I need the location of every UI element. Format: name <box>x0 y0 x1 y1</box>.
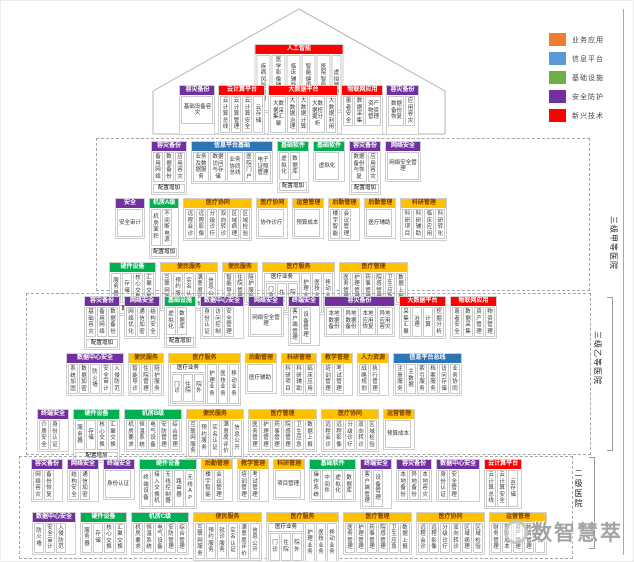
item-cell: 虚拟化 <box>279 152 289 180</box>
box-header: 医疗管理 <box>249 410 316 419</box>
item-cell: 恒温系统 <box>144 523 154 553</box>
box-header: 硬件设备 <box>81 513 126 522</box>
item-cell: 备份恢复 <box>44 470 54 500</box>
tier-row: 容灾备份备用网络数据备份应用容灾配置增加信息平台基础业务及数据服务数据访问与存储… <box>99 141 587 195</box>
item-cell: 备用网络 <box>97 307 107 337</box>
item-cell: 云计算总线 <box>220 96 230 133</box>
item-cell: 数据备份与恢复 <box>351 152 367 182</box>
item-cell: 异地备份 <box>409 470 419 500</box>
item-cell: 安防管理 <box>166 523 176 553</box>
box-header: 网络安全 <box>125 297 159 306</box>
box-body: 患者安全数据采集资产管理物资管理 <box>451 306 496 338</box>
box-header: 人力资源 <box>358 354 388 363</box>
item-cell: 院感管理 <box>283 420 293 450</box>
item-cell: 执行管理 <box>370 364 380 394</box>
item-cell: 院感管理 <box>378 523 388 553</box>
item-cell: 医技业务 <box>218 364 228 404</box>
item-cell: 预算成本 <box>385 420 411 448</box>
box-body: 楼宇智能会议管理 <box>329 208 359 240</box>
tier2-side-label: 三级乙等医院 <box>592 331 603 385</box>
item-cell: 远程影像 <box>334 420 344 450</box>
box-header: 医疗协同 <box>322 410 378 419</box>
item-cell: 卫生应急 <box>294 420 304 450</box>
item-cell: 院外 <box>194 374 204 402</box>
box-header: 便民服务 <box>161 263 217 272</box>
box-body: 医疗业务门诊住院院外护理业务医技业务移动业务 <box>169 363 240 405</box>
item-cell: 虚拟化 <box>333 470 343 500</box>
legend-swatch-infra <box>549 71 566 84</box>
box-header: 后勤管理 <box>202 460 232 469</box>
item-cell: 设备管理 <box>301 307 311 344</box>
box-header: 运营管理 <box>293 199 323 208</box>
item-cell: 住院 <box>281 533 291 561</box>
item-cell: 医疗辅助 <box>366 209 392 237</box>
box-body: 机房要求恒温系统电气设备安防管理综合管理 <box>125 419 181 451</box>
item-group: 医疗业务门诊住院院外 <box>268 523 304 562</box>
item-cell: 网络安全管理 <box>250 307 282 335</box>
item-cell: 云计算管理 <box>231 96 241 133</box>
box-header: 终端安全 <box>289 297 319 306</box>
item-cell: 机房要求 <box>133 523 143 553</box>
item-cell: 考试管理 <box>334 364 344 394</box>
item-cell: 治理 <box>412 307 422 337</box>
box-body: 机房要求恒温系统电气设备安防管理综合管理 <box>132 522 188 554</box>
tier-row: 容灾备份网络容灾备份恢复网络安全结构安全通信加密终端安全身份认证硬件设备终端设备… <box>22 459 570 509</box>
item-cell: 核心交换 <box>97 420 107 450</box>
item-cell: 双向转诊 <box>218 209 228 239</box>
item-cell: 区域检验 <box>473 523 483 553</box>
box-body: 备用网络数据备份应用容灾 <box>152 151 186 183</box>
box-body: 客户端管理设备管理 <box>289 306 319 345</box>
arch-box: 网络安全网络安全管理 <box>248 296 284 337</box>
item-cell: 操作系统 <box>311 470 321 500</box>
item-cell: 医院门户 <box>244 152 254 182</box>
item-cell: 预约服务 <box>199 420 209 457</box>
item-cell: 入侵防范 <box>56 523 66 553</box>
item-cell: 资产物资管理 <box>365 96 381 126</box>
box-body: 科研项目科研辅助临床应用 <box>282 363 316 395</box>
item-cell: 智能导诊 <box>130 364 140 394</box>
box-header: 终端安全 <box>38 410 68 419</box>
arch-box: 容灾备份本地备份异地备份本地容灾 <box>396 459 432 502</box>
box-header: 教学管理 <box>322 354 352 363</box>
item-cell: 结构安全 <box>69 470 79 500</box>
group-subs: 门诊住院院外 <box>171 373 205 403</box>
item-cell: 应用容灾 <box>368 152 378 182</box>
item-cell: 网络优化 <box>126 307 136 337</box>
group-label: 医疗业务 <box>171 365 205 373</box>
box-body: 介质安全身份认证 <box>38 419 68 451</box>
legend-label: 基础设施 <box>572 73 604 83</box>
arch-box: 医疗协同远程会诊远程影像分级诊疗双向转诊区域检验 <box>321 409 379 452</box>
box-body: 采集汇聚治理计算挖掘分析 <box>400 306 445 338</box>
item-cell: 会议管理 <box>214 470 224 500</box>
box-body: 患者安全数据采集资产物资管理 <box>342 95 382 127</box>
item-cell: 医技业务 <box>316 523 326 562</box>
box-body: 身份认证 <box>104 469 134 499</box>
item-cell: 医疗辅助 <box>247 364 273 392</box>
box-header: 便民服务 <box>223 263 257 272</box>
arch-box: 物联网应用患者安全数据采集资产管理物资管理 <box>450 296 497 339</box>
item-cell: 大数据利用 <box>326 96 336 133</box>
box-body: 云计算总线云计算管理云计算安全云存储 <box>219 95 264 134</box>
legend-label: 新兴技术 <box>572 111 604 121</box>
box-body: 医务管理护理管理药事管理院感管理卫生应急数据上报 <box>249 419 316 451</box>
item-cell: 数据上报 <box>400 523 410 553</box>
item-cell: 安全审计 <box>45 523 55 553</box>
tier3-box: 容灾备份网络容灾备份恢复网络安全结构安全通信加密终端安全身份认证硬件设备终端设备… <box>19 456 573 559</box>
box-header: 数据中心安全 <box>67 354 123 363</box>
item-cell: 云计算安全 <box>242 96 252 133</box>
item-cell: 双向转诊 <box>451 523 461 553</box>
box-body: 数据备份恢复应用容灾 <box>387 95 417 127</box>
item-cell: 考试管理 <box>250 470 260 500</box>
item-cell: 实名认证 <box>210 420 220 457</box>
item-cell: 网络容灾 <box>33 470 43 500</box>
box-header: 基础软件 <box>278 142 308 151</box>
item-cell: 服务器 <box>75 420 85 450</box>
item-cell: 卫生应急 <box>389 523 399 553</box>
item-cell: 汇聚交换 <box>115 523 125 553</box>
arch-box: 大数据平台采集汇聚治理计算挖掘分析 <box>399 296 446 339</box>
box-header: 信息平台基础 <box>192 142 272 151</box>
item-cell: 综合管理 <box>170 420 180 450</box>
box-header: 硬件设备 <box>140 460 196 469</box>
item-cell: 机房面积 <box>151 209 161 246</box>
arch-box: 后勤管理医疗辅助 <box>245 353 277 394</box>
box-header: 信息平台总线 <box>394 354 461 363</box>
arch-box: 科研管理项目管理 <box>273 459 305 500</box>
item-cell: 区域病理 <box>462 523 472 553</box>
legend-label: 信息平台 <box>572 54 604 64</box>
arch-box: 人力资源战略规划执行管理 <box>357 353 389 396</box>
right-boundary-line <box>623 9 624 555</box>
box-body: 智能导诊住院管理陪护服务 <box>129 363 163 395</box>
item-cell: 护理业务 <box>305 523 315 562</box>
item-cell: 结构安全 <box>148 307 158 337</box>
group-subs: 门诊住院院外 <box>269 532 303 562</box>
box-header: 后勤管理 <box>365 199 395 208</box>
item-cell: 远程影像 <box>196 209 206 239</box>
legend-label: 业务应用 <box>572 35 604 45</box>
box-body: 云计算总线云计算安全云存储 <box>485 469 521 508</box>
item-cell: 患者安全 <box>452 307 462 337</box>
item-cell: 临床应用 <box>424 209 434 239</box>
box-body: 终端设备接入交换机无线控制器路由器无线AP <box>140 469 196 508</box>
box-body: 网络容灾备份恢复 <box>32 469 62 501</box>
box-body: 防火墙安全审计入侵防范 <box>33 522 75 554</box>
item-cell: 身份认证 <box>202 307 212 337</box>
box-body: 安全审计 <box>116 208 144 238</box>
item-cell: 防火墙 <box>90 364 100 394</box>
arch-box: 医疗服务医疗业务门诊住院院外护理业务医技业务移动业务 <box>266 512 339 562</box>
box-body: 系统加固数据加密防火墙安全审计入侵防范 <box>67 363 123 395</box>
arch-box: 医疗服务医疗业务门诊住院院外护理业务医技业务移动业务 <box>168 353 241 406</box>
arch-box: 硬件设备服务器存储核心交换汇聚交换配置增加 <box>73 409 120 463</box>
box-header: 教学管理 <box>238 460 268 469</box>
box-header: 便民服务 <box>129 354 163 363</box>
arch-box: 数据中心安全身份认证安全管理 <box>436 459 480 502</box>
item-cell: 药事管理 <box>367 523 377 553</box>
item-cell: 机房要求 <box>126 420 136 450</box>
arch-box: 基础设施虚拟化数据库配置增加 <box>164 296 196 348</box>
item-cell: 数据上报 <box>305 420 315 450</box>
item-cell: 远程会诊 <box>323 420 333 450</box>
item-cell: 协作诊疗 <box>258 209 284 237</box>
tier2-bracket <box>607 297 613 451</box>
box-header: 科研管理 <box>274 460 304 469</box>
box-header: 容灾备份 <box>387 86 417 95</box>
box-body: 远程会诊远程影像分级诊疗双向转诊区域病理区域检验 <box>417 522 484 554</box>
item-cell: 医务管理 <box>250 420 260 450</box>
item-cell: 虚拟化 <box>166 307 176 335</box>
item-cell: 项目管理 <box>275 470 301 498</box>
arch-box: 科研管理科研项目科研辅助临床应用科研转化 <box>400 198 447 241</box>
item-cell: 无线AP <box>185 470 195 507</box>
item-cell: 网络安全管理 <box>387 152 419 180</box>
item-cell: 身份认证 <box>438 470 448 500</box>
item-cell: 互联网服务 <box>188 420 198 457</box>
item-cell: 电子证照管理 <box>255 152 271 182</box>
box-body: 本地数据备份异地数据备份本地应用恢复异地应用容灾 <box>325 306 394 336</box>
arch-box: 后勤管理楼宇智能会议管理 <box>201 459 233 502</box>
arch-box: 网络安全网络优化通信加密结构安全 <box>124 296 160 339</box>
item-cell: 基础设备容灾 <box>181 96 213 124</box>
box-header: 物联网应用 <box>451 297 496 306</box>
box-header: 云计算平台 <box>485 460 521 469</box>
box-body: 结构安全通信加密 <box>68 469 98 501</box>
watermark-logo-icon <box>504 520 528 544</box>
arch-box: 终端安全客户端管理设备管理 <box>288 296 320 346</box>
group-label: 医疗业务 <box>269 524 303 532</box>
item-cell: 数据备份 <box>108 307 118 337</box>
item-cell: 楼宇智能 <box>203 470 213 500</box>
box-header: 科研管理 <box>401 199 446 208</box>
item-cell: 访问控制 <box>213 307 223 337</box>
item-cell: 计算 <box>423 307 433 337</box>
box-header: 大数据平台 <box>400 297 445 306</box>
box-body: 战略规划执行管理 <box>358 363 388 395</box>
item-cell: 安全管理 <box>449 470 459 500</box>
item-cell: 战略规划 <box>359 364 369 394</box>
box-body: 预算成本 <box>293 208 323 238</box>
box-header: 便民服务 <box>194 513 261 522</box>
item-cell: 临床应用 <box>305 364 315 394</box>
item-cell: 数据库 <box>290 152 300 180</box>
item-cell: 通信加密 <box>137 307 147 337</box>
box-body: 机房面积不间断电源 <box>150 208 178 247</box>
tier1-rows: 容灾备份备用网络数据备份应用容灾配置增加信息平台基础业务及数据服务数据访问与存储… <box>99 141 587 319</box>
item-cell: 业务协同 <box>450 364 460 394</box>
box-footer: 配置增加 <box>166 337 194 346</box>
item-cell: 主数据 <box>406 364 416 394</box>
item-cell: 云存储 <box>508 470 518 507</box>
arch-box: 后勤管理楼宇智能会议管理 <box>328 198 360 241</box>
box-body: 网络安全管理 <box>249 306 283 336</box>
arch-box: 医疗管理医务管理护理管理药事管理院感管理卫生应急数据上报 <box>343 512 412 555</box>
item-cell: 路由器 <box>174 470 184 507</box>
arch-box: 后勤管理医疗辅助 <box>364 198 396 239</box>
box-header: 容灾备份 <box>152 142 186 151</box>
item-cell: 挖掘分析 <box>434 307 444 337</box>
item-cell: 安全管理 <box>224 307 234 337</box>
box-header: 基础设施 <box>165 297 195 306</box>
arch-box: 终端安全客户端管理设备管理 <box>360 459 392 509</box>
box-body: 科研项目科研辅助临床应用科研转化 <box>401 208 446 240</box>
box-body: 项目管理 <box>274 469 304 499</box>
arch-box: 网络安全网络安全管理 <box>385 141 421 182</box>
item-cell: 住院 <box>183 374 193 402</box>
box-header: 容灾备份 <box>32 460 62 469</box>
box-header: 后勤管理 <box>329 199 359 208</box>
arch-box: 基础软件操作系统中间件虚拟化数据库 <box>309 459 356 502</box>
arch-box: 大数据平台大数据采集汇聚大数据治理大数据计算大数据挖掘分析大数据利用 <box>268 85 338 135</box>
box-body: 大数据采集汇聚大数据治理大数据计算大数据挖掘分析大数据利用 <box>269 95 337 134</box>
item-cell: 楼宇智能 <box>330 209 340 239</box>
item-cell: 业务及数据服务 <box>193 152 209 182</box>
legend-item: 安全防护 <box>549 90 604 103</box>
item-cell: 无线控制器 <box>163 470 173 507</box>
box-body: 业务及数据服务数据访问与存储业务协同总线医院门户电子证照管理 <box>192 151 272 183</box>
arch-box: 机房C级机房要求恒温系统电气设备安防管理综合管理 <box>131 512 189 555</box>
item-cell: 安防管理 <box>159 420 169 450</box>
item-cell: 本地应用恢复 <box>360 307 376 335</box>
arch-box: 医疗协同远程会诊远程影像分级诊疗双向转诊区域病理区域检验 <box>183 198 252 241</box>
item-cell: 满意度评价 <box>221 420 231 457</box>
box-header: 机房B级 <box>125 410 181 419</box>
item-cell: 电气设备 <box>155 523 165 553</box>
item-cell: 科研转化 <box>435 209 445 239</box>
arch-box: 机房B级机房要求恒温系统电气设备安防管理综合管理 <box>124 409 182 452</box>
box-header: 安全 <box>116 199 144 208</box>
box-footer: 配置增加 <box>86 339 118 348</box>
box-body: 虚拟化数据库 <box>165 306 195 336</box>
item-cell: 服务器 <box>82 523 92 553</box>
box-header: 基础软件 <box>314 142 344 151</box>
box-body: 本地备份异地备份本地容灾 <box>397 469 431 501</box>
item-cell: 科研辅助 <box>413 209 423 239</box>
arch-box: 硬件设备终端设备接入交换机无线控制器路由器无线AP <box>139 459 197 509</box>
item-cell: 区域检验 <box>240 209 250 239</box>
box-header: 医疗管理 <box>340 263 407 272</box>
tier1-box: 容灾备份备用网络数据备份应用容灾配置增加信息平台基础业务及数据服务数据访问与存储… <box>96 138 590 291</box>
item-cell: 会议管理 <box>341 209 351 239</box>
architecture-diagram: 业务应用 信息平台 基础设施 安全防护 新兴技术 人工智能疾病风险预测医学影像辅… <box>0 0 634 562</box>
box-body: 基础设备容灾 <box>180 95 214 125</box>
item-cell: 大数据治理 <box>287 96 297 133</box>
legend-item: 新兴技术 <box>549 109 604 122</box>
item-cell: 汇聚交换 <box>108 420 118 450</box>
item-cell: 门诊 <box>270 533 280 561</box>
item-cell: 客户端管理 <box>362 470 372 507</box>
item-cell: 院外 <box>292 533 302 561</box>
box-header: 网络安全 <box>249 297 283 306</box>
item-cell: 本地备份 <box>398 470 408 500</box>
arch-box: 数据中心安全系统加固数据加密防火墙安全审计入侵防范 <box>66 353 124 396</box>
item-cell: 采集汇聚 <box>401 307 411 337</box>
item-cell: 介质安全 <box>39 420 49 450</box>
box-body: 医疗辅助 <box>246 363 276 393</box>
item-cell: 应用容灾 <box>405 96 415 126</box>
item-cell: 数据库 <box>177 307 187 335</box>
item-cell: 科研项目 <box>402 209 412 239</box>
item-cell: 大数据采集汇聚 <box>270 96 286 133</box>
box-footer: 配置增加 <box>153 184 185 193</box>
box-body: 身份认证访问控制安全管理 <box>201 306 243 338</box>
box-header: 数据中心安全 <box>201 297 243 306</box>
item-cell: 身份认证 <box>105 470 131 498</box>
box-header: 数据中心安全 <box>437 460 479 469</box>
box-body: 数据备份与恢复应用容灾 <box>350 151 380 183</box>
arch-box: 医疗协同协作诊疗 <box>256 198 288 239</box>
box-header: 机房A级 <box>150 199 178 208</box>
item-cell: 终端设备 <box>141 470 151 507</box>
box-body: 注册服务主数据索引服务档案服务访问存储业务协同 <box>394 363 461 395</box>
tier2-box: 容灾备份基础容灾备用网络数据备份配置增加网络安全网络优化通信加密结构安全基础设施… <box>26 293 591 455</box>
box-body: 医务管理护理管理药事管理院感管理卫生应急数据上报 <box>344 522 411 554</box>
item-cell: 入侵防范 <box>112 364 122 394</box>
arch-box: 容灾备份备用网络数据备份应用容灾配置增加 <box>151 141 187 195</box>
item-cell: 预算成本 <box>294 209 320 237</box>
item-cell: 远程会诊 <box>185 209 195 239</box>
legend: 业务应用 信息平台 基础设施 安全防护 新兴技术 <box>549 33 604 122</box>
legend-swatch-platform <box>549 52 566 65</box>
item-cell: 核心交换 <box>104 523 114 553</box>
box-body: 身份认证安全管理 <box>437 469 479 501</box>
item-cell: 应用容灾 <box>175 152 185 182</box>
item-cell: 分级诊疗 <box>440 523 450 553</box>
item-cell: 培训管理 <box>323 364 333 394</box>
house-roof-section: 人工智能疾病风险预测医学影像辅助检测临床辅助诊疗智能健康管理医院智能管理虚拟管理… <box>151 7 447 136</box>
item-cell: 系统加固 <box>68 364 78 394</box>
item-cell: 实名认证 <box>228 523 238 560</box>
arch-box: 容灾备份网络容灾备份恢复 <box>31 459 63 502</box>
item-cell: 护理管理 <box>356 523 366 553</box>
item-cell: 访问存储 <box>439 364 449 394</box>
box-header: 科研管理 <box>282 354 316 363</box>
box-header: 容灾备份 <box>397 460 431 469</box>
box-header: 运营管理 <box>384 410 414 419</box>
item-cell: 就诊服务 <box>217 523 227 560</box>
box-header: 网络安全 <box>68 460 98 469</box>
item-cell: 财务管理 <box>491 523 501 553</box>
box-header: 大数据平台 <box>269 86 337 95</box>
item-cell: 资产管理 <box>474 307 484 337</box>
box-header: 医疗服务 <box>267 513 338 522</box>
tier-row: 数据中心安全系统加固数据加密防火墙安全审计入侵防范便民服务智能导诊住院管理陪护服… <box>29 353 588 406</box>
box-body: 服务器存储核心交换汇聚交换 <box>74 419 119 451</box>
item-cell: 本地数据备份 <box>326 307 342 335</box>
box-body: 虚拟化 <box>314 151 344 181</box>
item-cell: 云计算总线 <box>486 470 496 507</box>
box-header: 云计算平台 <box>219 86 264 95</box>
item-cell: 备用网络 <box>153 152 163 182</box>
box-header: 医疗协同 <box>184 199 251 208</box>
item-cell: 陪护服务 <box>152 364 162 394</box>
item-cell: 移动业务 <box>327 523 337 562</box>
item-cell: 数据加密 <box>79 364 89 394</box>
box-body: 网络安全管理 <box>386 151 420 181</box>
arch-box: 终端安全身份认证 <box>103 459 135 500</box>
group-label: 医疗业务 <box>265 274 299 282</box>
box-header: 便民服务 <box>187 410 243 419</box>
arch-box: 运营管理预算成本 <box>383 409 415 450</box>
tier-row: 数据中心安全防火墙安全审计入侵防范硬件设备服务器存储核心交换汇聚交换机房C级机房… <box>22 512 570 562</box>
box-body: 基础容灾备用网络数据备份 <box>85 306 119 338</box>
box-header: 机房C级 <box>132 513 188 522</box>
item-cell: 数据备份 <box>164 152 174 182</box>
item-cell: 移动业务 <box>229 364 239 404</box>
